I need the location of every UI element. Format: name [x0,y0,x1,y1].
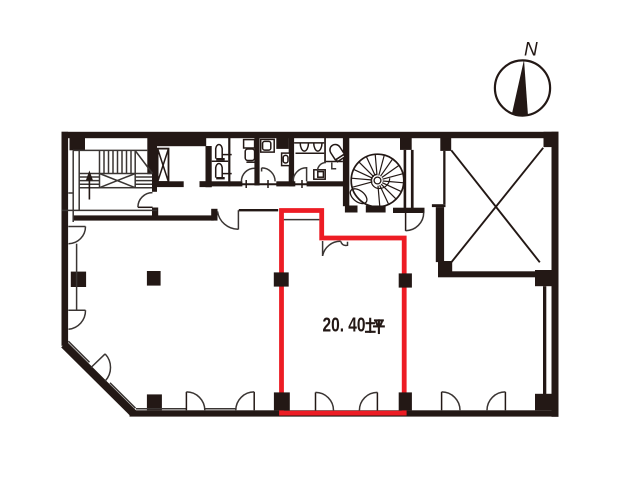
svg-text:20. 40: 20. 40 [323,314,366,337]
svg-text:N: N [524,40,538,61]
